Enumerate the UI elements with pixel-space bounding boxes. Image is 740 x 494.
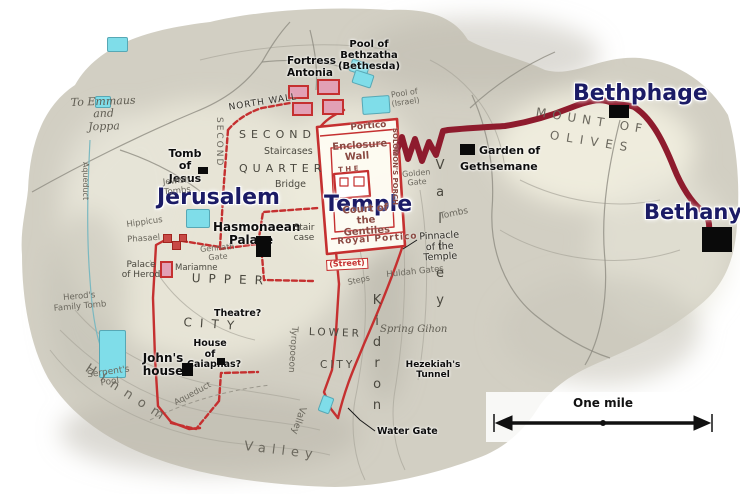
map-label-kidron: Kidron: [369, 293, 384, 438]
map-label-jewish-tombs: Jewish Tombs: [160, 176, 194, 198]
map-label-bridge: Bridge: [275, 180, 306, 191]
map-label-mariamne: Mariamne: [175, 264, 218, 274]
pool-pond-northwest: [107, 37, 128, 52]
tower-antonia-tower-nw: [288, 85, 309, 99]
map-label-staircases: Staircases: [264, 147, 313, 158]
map-label-quarter: QUARTER: [239, 163, 326, 175]
pool-pond-west: [95, 96, 111, 108]
map-label-royal-portico: Royal Portico: [337, 231, 418, 247]
map-label-hasmonaean-palace: Hasmonaean Palace: [213, 221, 289, 248]
map-label-aqueduct-south: Aqueduct: [173, 381, 213, 408]
tomb-of-jesus-marker: [198, 167, 208, 174]
map-label-aqueduct-west: Aqueduct: [80, 162, 89, 218]
tower-antonia-tower-ne: [317, 79, 340, 95]
pool-siloam-pool: [317, 394, 334, 414]
tower-antonia-tower-sw: [292, 102, 313, 116]
scale-bar-label: One mile: [490, 396, 716, 410]
map-label-temple: Temple: [324, 193, 412, 218]
map-label-portico-north: Portico: [350, 120, 387, 133]
map-label-palace-of-herod: Palace of Herod: [118, 260, 164, 280]
map-label-jerusalem: Jerusalem: [157, 186, 280, 211]
map-label-hezekiahs-tunnel: Hezekiah's Tunnel: [402, 360, 464, 380]
map-label-garden-of: Garden of: [479, 145, 540, 157]
bethphage-marker: [609, 105, 629, 118]
map-label-golden-gate: Golden Gate: [401, 168, 432, 188]
map-label-street: (Street): [326, 258, 368, 271]
map-label-phasael: Phasael: [127, 234, 161, 246]
scale-bar: One mile: [490, 396, 716, 438]
pool-towers-pool: [186, 209, 210, 228]
map-label-pool-of-israel: Pool of (Israel): [387, 87, 423, 109]
map-label-steps: Steps: [347, 274, 371, 287]
map-label-bethany: Bethany: [644, 201, 740, 225]
map-label-valley-kidron: Valley: [432, 158, 447, 338]
tower-citadel-tower: [179, 234, 187, 242]
pool-serpents-pool-water: [99, 330, 126, 378]
map-label-herods-family-tomb: Herod's Family Tomb: [52, 290, 107, 314]
map-label-theatre: Theatre?: [214, 309, 261, 320]
gethsemane-marker: [460, 144, 475, 155]
map-label-lower: LOWER: [309, 327, 362, 341]
map-label-huldah-gates: Huldah Gates: [386, 265, 444, 280]
map-label-water-gate: Water Gate: [377, 427, 438, 438]
map-label-hinnom: Hinnom: [82, 362, 173, 428]
johns-house-marker: [182, 363, 193, 376]
hasmonaean-palace-marker: [256, 236, 271, 257]
map-label-bethphage: Bethphage: [573, 82, 708, 107]
map-label-city-upper: CITY: [183, 316, 242, 333]
tower-mariamne-tower: [160, 261, 173, 278]
pool-bethzatha-pool-south: [351, 69, 374, 88]
caiaphas-marker: [217, 358, 225, 365]
map-label-upper: UPPER: [192, 272, 272, 288]
pool-israel-pool: [361, 95, 390, 115]
bethany-marker: [702, 227, 732, 252]
map-label-enclosure-wall: Enclosure Wall: [332, 139, 381, 165]
tower-hippicus-tower: [163, 234, 172, 243]
map-label-court-of-gentiles: Court of the Gentiles: [337, 202, 395, 239]
jerusalem-map: JerusalemTempleBethphageBethanyFortress …: [0, 0, 740, 494]
map-label-pinnacle: Pinnacle of the Temple: [410, 230, 470, 265]
tower-phasael-tower: [172, 241, 181, 250]
map-label-house-of-caiaphas: House of Caiaphas?: [187, 339, 233, 371]
map-label-johns-house: John's house: [140, 352, 186, 379]
tower-antonia-tower-se: [322, 99, 344, 115]
map-label-second: SECOND: [239, 129, 316, 141]
map-label-mount-of: MOUNT OF: [535, 106, 649, 137]
map-label-spring-gihon: Spring Gihon: [380, 324, 447, 335]
map-label-olives: OLIVES: [549, 129, 635, 156]
map-label-gennath-gate: Gennath Gate: [199, 243, 236, 264]
map-label-tombs: Tombs: [439, 206, 469, 222]
scale-bar-arrow: [490, 413, 716, 437]
map-label-the-temple: T H E: [338, 166, 359, 175]
map-label-second-wall-vertical: SECOND: [214, 117, 224, 181]
map-label-solomons-porch: SOLOMON'S PORCH: [390, 128, 398, 236]
map-label-fortress-antonia: Fortress Antonia: [287, 56, 336, 80]
map-label-staircase: Stair case: [291, 223, 317, 243]
map-label-gethsemane: Gethsemane: [460, 161, 538, 173]
map-label-tyropoeon: Tyropoeon: [282, 326, 299, 420]
map-label-valley-hinnom: Valley: [243, 440, 319, 464]
map-label-hippicus: Hippicus: [126, 216, 163, 230]
map-label-city-lower: CITY: [320, 360, 355, 372]
map-label-valley-tyropoeon: Valley: [279, 405, 307, 463]
